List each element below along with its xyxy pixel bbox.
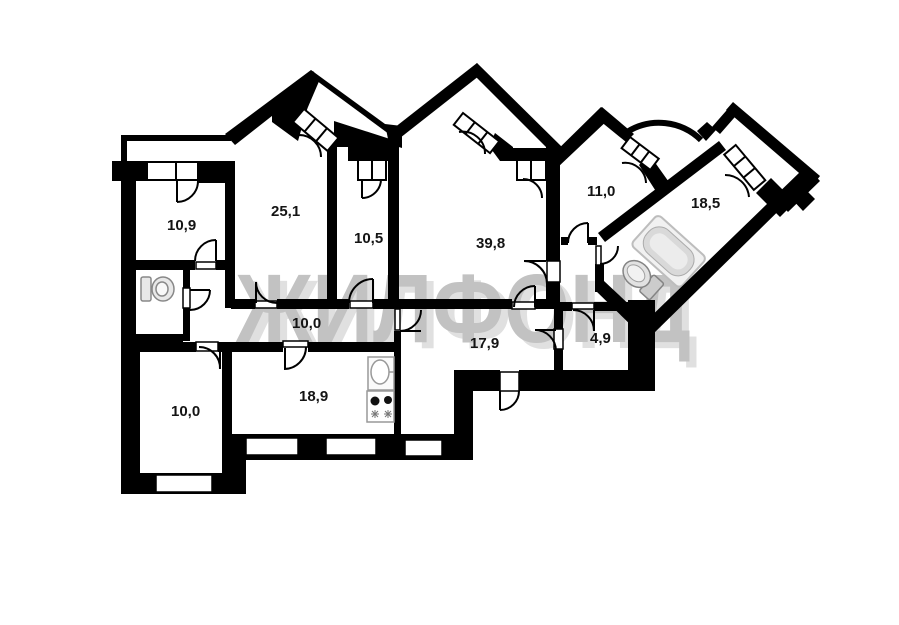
svg-text:17,9: 17,9 <box>470 335 499 352</box>
svg-text:39,8: 39,8 <box>476 235 505 252</box>
svg-text:18,5: 18,5 <box>691 195 720 212</box>
svg-text:11,0: 11,0 <box>587 183 615 200</box>
svg-text:10,5: 10,5 <box>354 230 383 247</box>
svg-text:25,1: 25,1 <box>271 203 300 220</box>
svg-text:10,0: 10,0 <box>171 403 200 420</box>
svg-text:4,9: 4,9 <box>590 330 611 347</box>
svg-text:18,9: 18,9 <box>299 388 328 405</box>
svg-text:10,9: 10,9 <box>167 217 196 234</box>
svg-text:10,0: 10,0 <box>292 315 321 332</box>
